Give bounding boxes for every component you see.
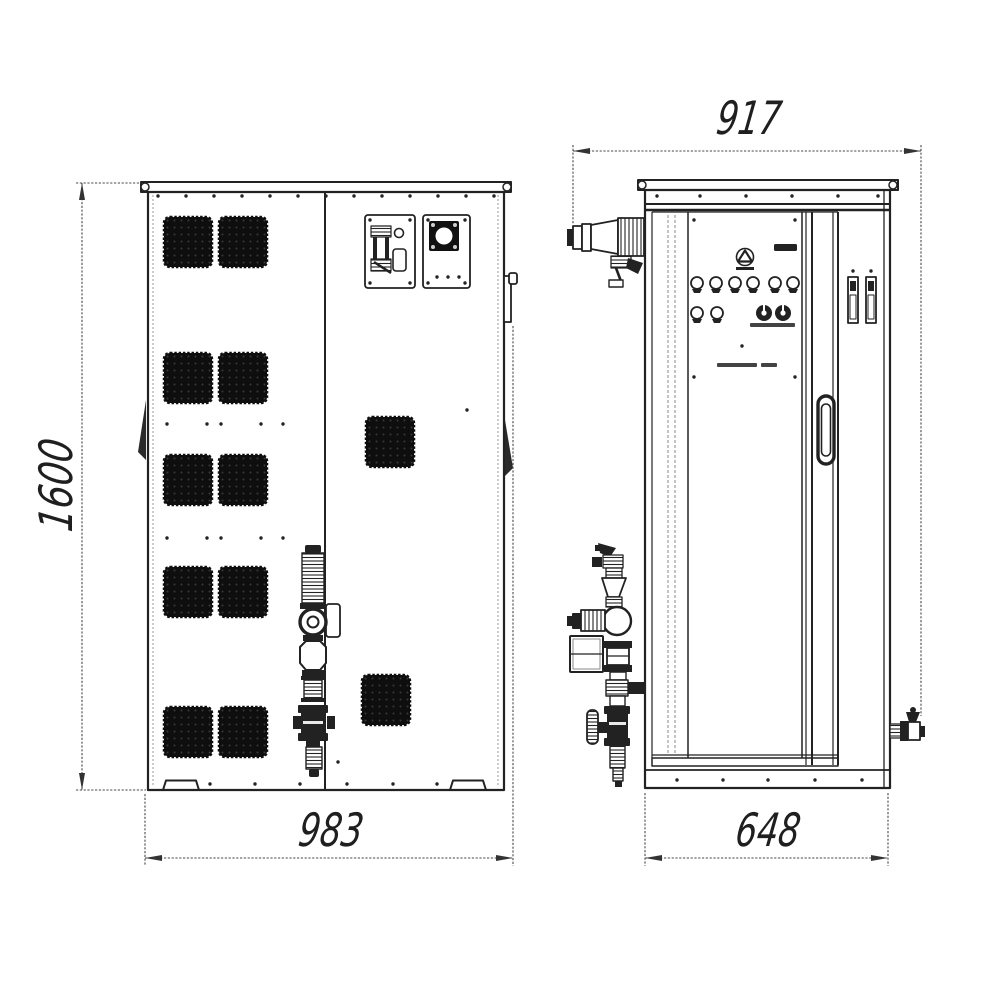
panel-connector	[393, 249, 406, 271]
terminal-block-bottom	[371, 259, 391, 271]
front-controller-panel	[423, 215, 470, 288]
dim-text-side-depth: 917	[713, 91, 785, 145]
pump-volute	[603, 607, 631, 635]
front-hinge-left	[138, 400, 146, 460]
vent-grille	[219, 217, 267, 267]
flue-cone	[591, 220, 618, 254]
side-piping-assembly	[567, 543, 645, 787]
wall-connector	[628, 682, 645, 694]
vent-grille	[366, 417, 414, 467]
front-top-cap-end-left	[141, 183, 149, 191]
panel-label-bar	[761, 363, 777, 367]
panel-nameplate	[774, 244, 797, 251]
drain-valve-handle	[906, 712, 920, 722]
dim-text-front-width: 983	[295, 803, 367, 857]
flue-tap-handle	[626, 258, 643, 274]
reducer-cone	[602, 578, 626, 597]
controller-fan-opening	[436, 228, 453, 245]
terminal-block-top	[371, 226, 391, 237]
vent-grille	[164, 567, 212, 617]
vent-grille	[219, 455, 267, 505]
valve-threaded-pipe	[302, 553, 324, 603]
drawing-svg: 1600 983 917 648	[0, 0, 1000, 1000]
dimension-side-width-648: 648	[645, 793, 888, 866]
circuit-breaker	[866, 269, 876, 323]
vent-grille	[164, 353, 212, 403]
side-top-cap	[638, 180, 898, 190]
circuit-breaker	[848, 269, 858, 323]
side-lower-valve	[607, 714, 628, 738]
technical-drawing-canvas: 1600 983 917 648	[0, 0, 1000, 1000]
side-bottom-rail	[652, 758, 838, 766]
front-top-cap	[141, 182, 511, 192]
terminal-rail-right	[385, 237, 389, 259]
panel-gland	[395, 229, 404, 238]
dim-text-side-width: 648	[732, 803, 804, 857]
drain-valve	[890, 707, 925, 741]
front-hinge-right	[505, 420, 513, 476]
valve-body	[300, 641, 326, 670]
vent-grille	[164, 455, 212, 505]
vent-grille	[219, 707, 267, 757]
pump-stub	[581, 610, 605, 631]
front-view	[138, 182, 517, 790]
vent-grille	[219, 567, 267, 617]
front-terminal-panel	[365, 215, 415, 288]
vent-grille	[219, 353, 267, 403]
vent-grille	[362, 675, 410, 725]
valve-drain-nipple	[306, 747, 322, 769]
vent-grille	[164, 217, 212, 267]
front-side-handle	[504, 273, 517, 322]
side-valve-handwheel	[587, 710, 598, 744]
flue-flange	[618, 218, 644, 256]
panel-label-bar	[717, 363, 757, 367]
flue-pipe	[567, 218, 644, 287]
side-cabinet-shell	[638, 180, 898, 788]
front-top-cap-end-right	[503, 183, 511, 191]
valve-side-box	[326, 604, 340, 637]
dimension-height-1600: 1600	[29, 183, 146, 790]
rotary-switch	[756, 305, 772, 321]
vent-grille	[164, 707, 212, 757]
dim-text-height: 1600	[29, 435, 83, 535]
side-view	[567, 180, 925, 788]
terminal-rail-left	[373, 237, 377, 259]
rotary-switch	[775, 305, 791, 321]
